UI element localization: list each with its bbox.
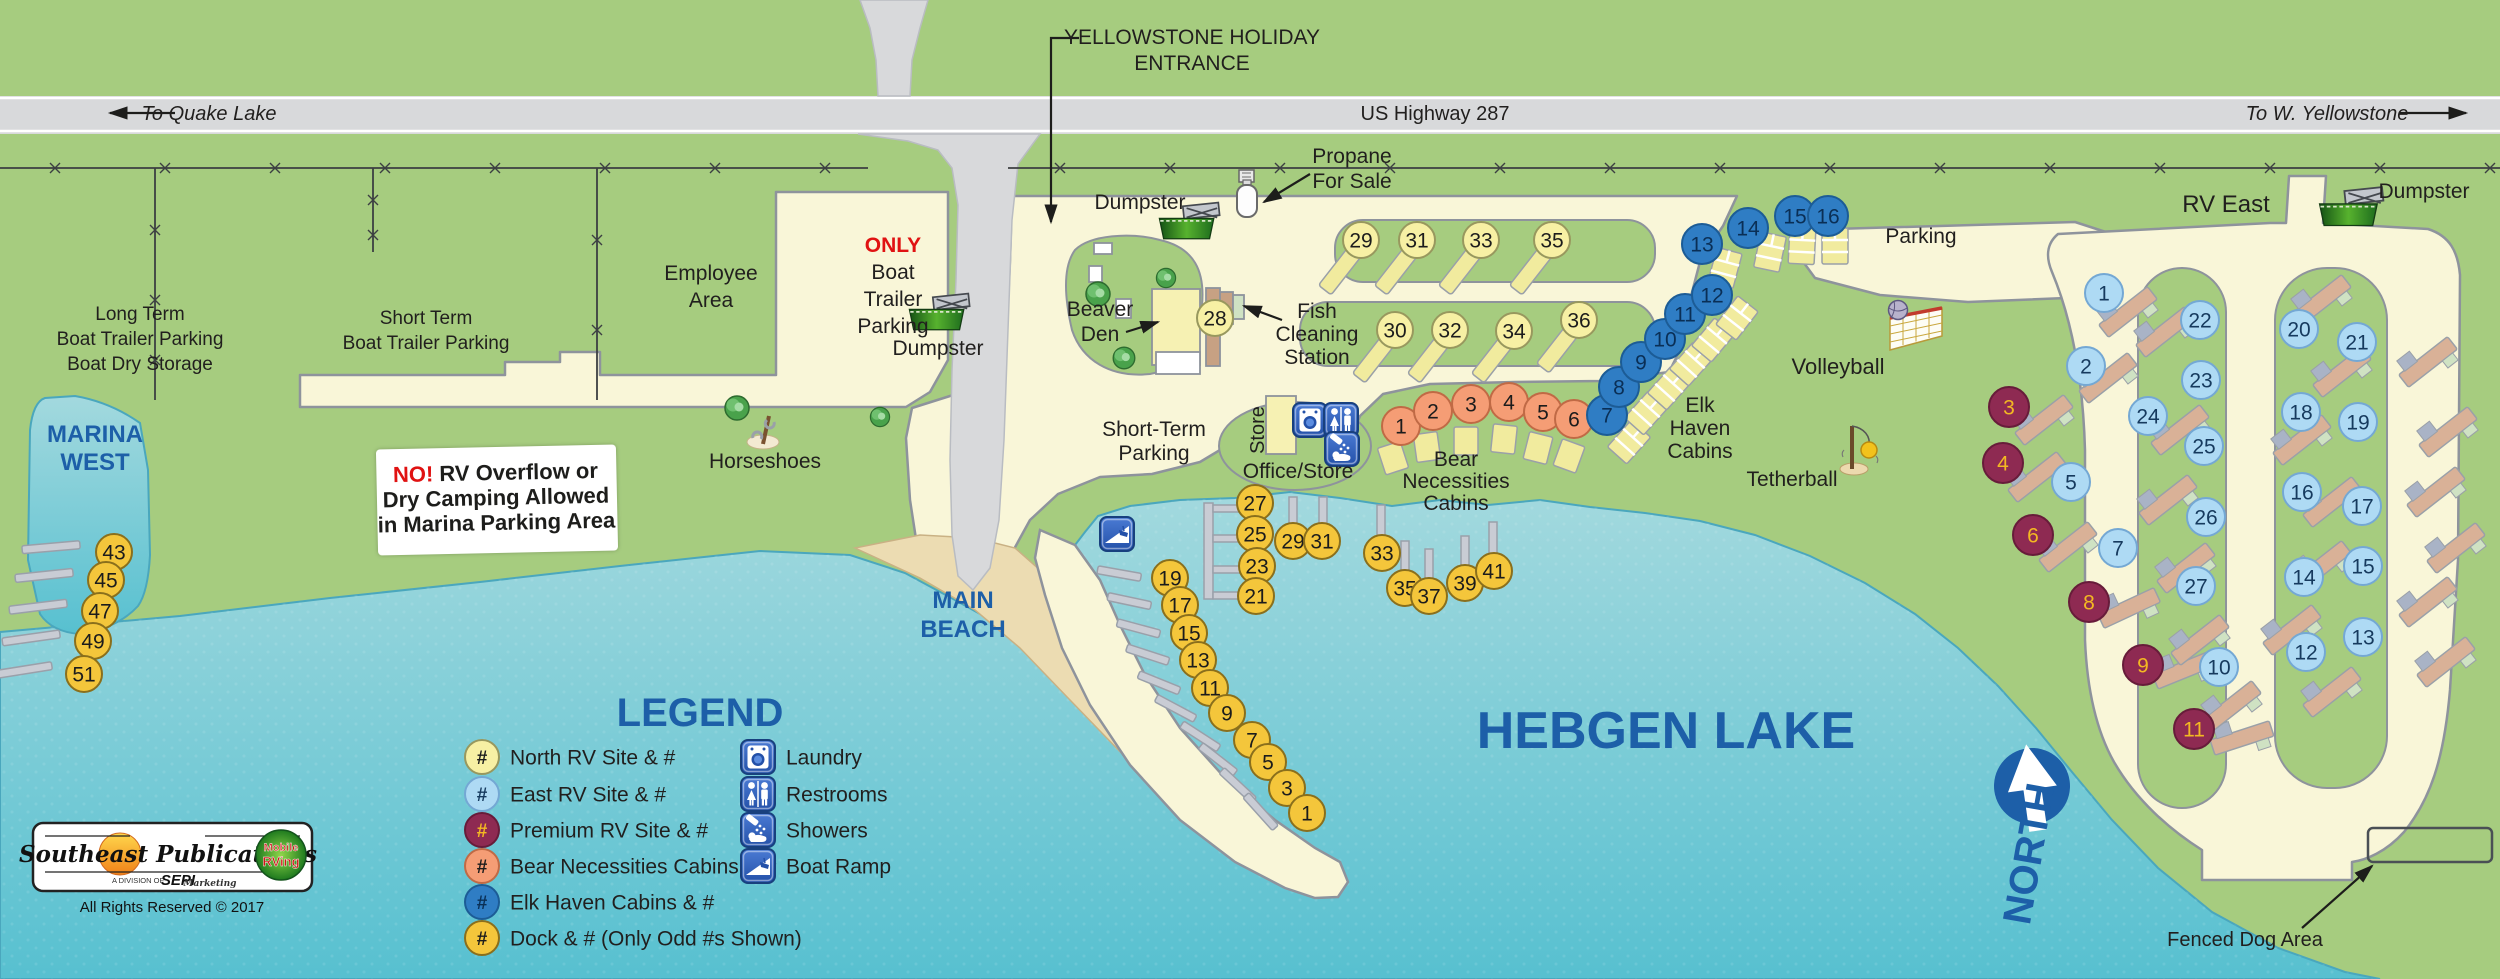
label-office-store: Office/Store [1243,460,1354,483]
tspan: Elk [1685,394,1715,417]
text: Laundry [786,747,862,770]
text: # [477,893,488,914]
body: { "colors":{ "grass":"#a6cc7f","road":"#… [0,0,2500,979]
text: 13 [2351,627,2374,650]
site-east-26: 26 [2187,498,2225,536]
logo-marketing: Marketing [183,879,237,889]
tspan: Employee [664,262,757,285]
text: 1 [1301,803,1313,826]
text: 23 [2189,370,2212,393]
label-marina-west: MARINAWEST [47,421,143,476]
text: 8 [2083,592,2095,615]
site-east-25: 25 [2185,427,2223,465]
text: 12 [1700,285,1723,308]
sign-line3: in Marina Parking Area [377,507,616,537]
site-east-13: 13 [2344,618,2382,656]
label-parking: Parking [1885,225,1956,248]
cabin-bear [1491,424,1518,454]
dock-41: 41 [1476,553,1512,589]
tspan: MAIN [932,587,993,614]
tspan: Short Term [380,308,473,329]
tspan: Necessities [1402,470,1509,493]
text: 3 [2003,397,2015,420]
text: East RV Site & # [510,784,666,807]
campground-map: 2829303132333435361234567891011121314151… [0,0,2500,979]
text: 45 [94,570,117,593]
tspan: Fenced Dog Area [2167,929,2324,951]
logo-rights: All Rights Reserved © 2017 [80,899,264,916]
pier [1204,503,1213,599]
site-east-21: 21 [2338,323,2376,361]
dock-25: 25 [1237,516,1273,552]
site-bear-4: 4 [1490,383,1528,421]
no-overflow-sign: NO! RV Overflow or Dry Camping Allowed i… [376,444,618,555]
building-deck [1089,266,1102,282]
text: 9 [1635,352,1647,375]
text: 20 [2287,319,2310,342]
tspan: ENTRANCE [1134,52,1250,75]
tspan: Bear [1434,448,1478,471]
tspan: Horseshoes [709,450,821,473]
dock-21: 21 [1238,578,1274,614]
use [741,849,775,883]
tspan: Dumpster [1094,191,1185,214]
text: 33 [1370,543,1393,566]
text: 21 [1244,586,1267,609]
text: 1 [1395,416,1407,439]
tree-icon [870,407,889,426]
text: 11 [2183,719,2205,742]
tspan: Beaver [1067,298,1134,321]
tspan: Haven [1670,417,1731,440]
propane-icon [1237,170,1257,217]
site-north-35: 35 [1534,222,1570,258]
text: 10 [2207,657,2230,680]
site-east-2: 2 [2067,347,2105,385]
text: # [477,857,488,878]
use [741,813,775,847]
text: 7 [1601,405,1613,428]
site-elk-12: 12 [1692,275,1732,315]
text: # [477,785,488,806]
site-north-29: 29 [1343,222,1379,258]
text: Restrooms [786,784,888,807]
map-svg: 2829303132333435361234567891011121314151… [0,0,2500,979]
label-fenced-dog-area: Fenced Dog Area [2167,929,2324,951]
label-to-quake-lake: To Quake Lake [142,103,277,125]
site-east-27: 27 [2177,567,2215,605]
label-tetherball: Tetherball [1746,468,1837,491]
logo-badge1: Mobile [264,842,299,854]
tspan: Office/Store [1243,460,1354,483]
tspan: To W. Yellowstone [2246,103,2409,125]
dock-9: 9 [1209,695,1245,731]
tspan: Propane [1312,145,1391,168]
text: # [477,929,488,950]
text: 26 [2194,507,2217,530]
text: 14 [1736,218,1760,241]
site-east-20: 20 [2280,310,2318,348]
text: 16 [2290,482,2313,505]
text: 5 [1537,402,1549,425]
text: 31 [1405,230,1428,253]
site-north-34: 34 [1496,313,1532,349]
text: 32 [1438,320,1461,343]
site-east-5: 5 [2052,463,2090,501]
text: 11 [1674,304,1696,327]
dock-49: 49 [75,623,111,659]
label-horseshoes: Horseshoes [709,450,821,473]
label-dumpster-left: Dumpster [892,337,983,360]
text: 7 [2112,538,2124,561]
text: 15 [1783,206,1806,229]
text: 18 [2289,402,2312,425]
site-bear-3: 3 [1452,385,1490,423]
text: 36 [1567,310,1590,333]
site-east-24: 24 [2129,397,2167,435]
logo-badge2: RVing [262,854,299,869]
site-east-23: 23 [2182,361,2220,399]
site-premium-11: 11 [2174,709,2214,749]
text: 41 [1482,561,1505,584]
tree-icon [1156,268,1175,287]
text: 6 [1568,409,1580,432]
label-us-highway-287: US Highway 287 [1361,103,1510,125]
text: 3 [1281,778,1293,801]
site-east-10: 10 [2200,648,2238,686]
tspan: Parking [1885,225,1956,248]
dock-51: 51 [66,656,102,692]
tspan: Cabins [1667,440,1732,463]
tspan: Den [1081,323,1120,346]
tspan: Trailer [864,288,923,311]
text: 30 [1383,320,1406,343]
text: 8 [1613,377,1625,400]
site-east-22: 22 [2181,301,2219,339]
site-premium-8: 8 [2069,582,2109,622]
dock-31: 31 [1304,523,1340,559]
tspan: Fish [1297,300,1337,323]
text: 27 [1243,493,1266,516]
tspan: Dumpster [892,337,983,360]
tspan: Tetherball [1746,468,1837,491]
text: 1 [2098,283,2110,306]
text: 22 [2188,310,2211,333]
label-rv-east: RV East [2182,191,2270,218]
dock-33: 33 [1364,535,1400,571]
text: Elk Haven Cabins & # [510,892,715,915]
text: 3 [1465,394,1477,417]
label-to-w-yellowstone: To W. Yellowstone [2246,103,2409,125]
text: 2 [1427,401,1439,424]
building-deck [1094,243,1112,254]
site-east-12: 12 [2287,633,2325,671]
tspan: RV East [2182,191,2270,218]
site-east-18: 18 [2282,393,2320,431]
text: 33 [1469,230,1492,253]
text: Boat Ramp [786,856,891,879]
highway-287 [0,96,2500,134]
tspan: Area [689,289,734,312]
tspan: Boat Dry Storage [67,354,213,375]
text: 25 [2192,436,2215,459]
tspan: Boat [871,261,914,284]
text: 31 [1310,531,1333,554]
tspan: WEST [60,449,130,476]
sign-line1-rest: RV Overflow or [433,458,599,486]
site-north-28: 28 [1197,300,1233,336]
site-east-17: 17 [2343,487,2381,525]
site-elk-16: 16 [1808,196,1848,236]
tspan: Long Term [95,304,184,325]
tspan: For Sale [1312,170,1391,193]
text: 13 [1186,650,1209,673]
text: 13 [1690,234,1713,257]
text: 15 [2351,556,2374,579]
text: 39 [1453,573,1476,596]
use [741,740,775,774]
label-dumpster-center: Dumpster [1094,191,1185,214]
site-north-31: 31 [1399,222,1435,258]
text: 9 [2137,655,2149,678]
text: 47 [88,601,111,624]
text: 19 [2346,412,2369,435]
label-volleyball: Volleyball [1792,354,1885,379]
text: 28 [1203,308,1226,331]
text: 17 [2350,496,2373,519]
label-hebgen-lake: HEBGEN LAKE [1477,702,1855,760]
text: 29 [1349,230,1372,253]
site-premium-6: 6 [2013,515,2053,555]
text: 5 [1262,752,1274,775]
text: 34 [1502,321,1526,344]
text: Bear Necessities Cabins & # [510,856,776,879]
site-north-33: 33 [1463,222,1499,258]
building-bldg [1266,396,1296,454]
text: 37 [1417,586,1440,609]
tspan: Parking [857,315,928,338]
text: 12 [2294,642,2317,665]
site-north-36: 36 [1561,302,1597,338]
use [741,777,775,811]
text: 23 [1245,556,1268,579]
text: 14 [2292,567,2316,590]
tspan: ONLY [865,234,921,257]
site-east-15: 15 [2344,547,2382,585]
site-elk-14: 14 [1728,208,1768,248]
site-north-32: 32 [1432,312,1468,348]
site-elk-13: 13 [1682,224,1722,264]
tspan: Parking [1118,442,1189,465]
text: Dock & # (Only Odd #s Shown) [510,928,802,951]
text: Premium RV Site & # [510,820,708,843]
tspan: Dumpster [2378,180,2469,203]
dock-37: 37 [1411,578,1447,614]
text: 29 [1281,531,1304,554]
tspan: BEACH [920,616,1005,643]
tspan: YELLOWSTONE HOLIDAY [1064,26,1320,49]
site-east-19: 19 [2339,403,2377,441]
logo-division: A DIVISION OF [112,876,165,885]
tspan: US Highway 287 [1361,103,1510,125]
dock-45: 45 [88,562,124,598]
tspan: Boat Trailer Parking [57,329,224,350]
site-east-1: 1 [2085,274,2123,312]
text: 35 [1540,230,1563,253]
tspan: Boat Trailer Parking [343,333,510,354]
tspan: Short-Term [1102,418,1206,441]
tree-icon [1113,347,1135,369]
text: 27 [2184,576,2207,599]
tspan: To Quake Lake [142,103,277,125]
site-premium-9: 9 [2123,645,2163,685]
tspan: MARINA [47,421,143,448]
text: 25 [1243,524,1266,547]
site-premium-3: 3 [1989,387,2029,427]
text: 6 [2027,525,2039,548]
site-north-30: 30 [1377,312,1413,348]
tspan: Store [1247,406,1269,454]
legend-title: LEGEND [617,691,784,735]
text: 2 [2080,356,2092,379]
building-deck [1156,352,1200,374]
tspan: Volleyball [1792,354,1885,379]
text: 4 [1997,453,2009,476]
text: 10 [1653,329,1676,352]
text: 9 [1221,703,1233,726]
text: 5 [2065,472,2077,495]
text: North RV Site & # [510,747,676,770]
building-fishg [1233,295,1244,319]
tspan: Cleaning [1276,323,1359,346]
text: 49 [81,631,104,654]
site-east-14: 14 [2285,558,2323,596]
text: 24 [2136,406,2160,429]
text: # [477,821,488,842]
tree-icon [725,396,749,420]
text: 4 [1503,392,1515,415]
sign-no: NO! [393,461,434,487]
site-premium-4: 4 [1983,443,2023,483]
site-east-16: 16 [2283,473,2321,511]
text: 21 [2345,332,2368,355]
text: 51 [72,664,95,687]
site-bear-2: 2 [1414,392,1452,430]
tspan: Station [1284,346,1349,369]
boatramp-icon [1100,517,1134,551]
text: Showers [786,820,868,843]
laundry-icon [1293,403,1327,437]
site-east-7: 7 [2099,529,2137,567]
text: 16 [1816,206,1839,229]
tspan: HEBGEN LAKE [1477,702,1855,760]
label-store: Store [1247,406,1269,454]
label-dumpster-right: Dumpster [2378,180,2469,203]
tspan: Cabins [1423,492,1488,515]
dock-1: 1 [1289,795,1325,831]
text: # [477,748,488,769]
